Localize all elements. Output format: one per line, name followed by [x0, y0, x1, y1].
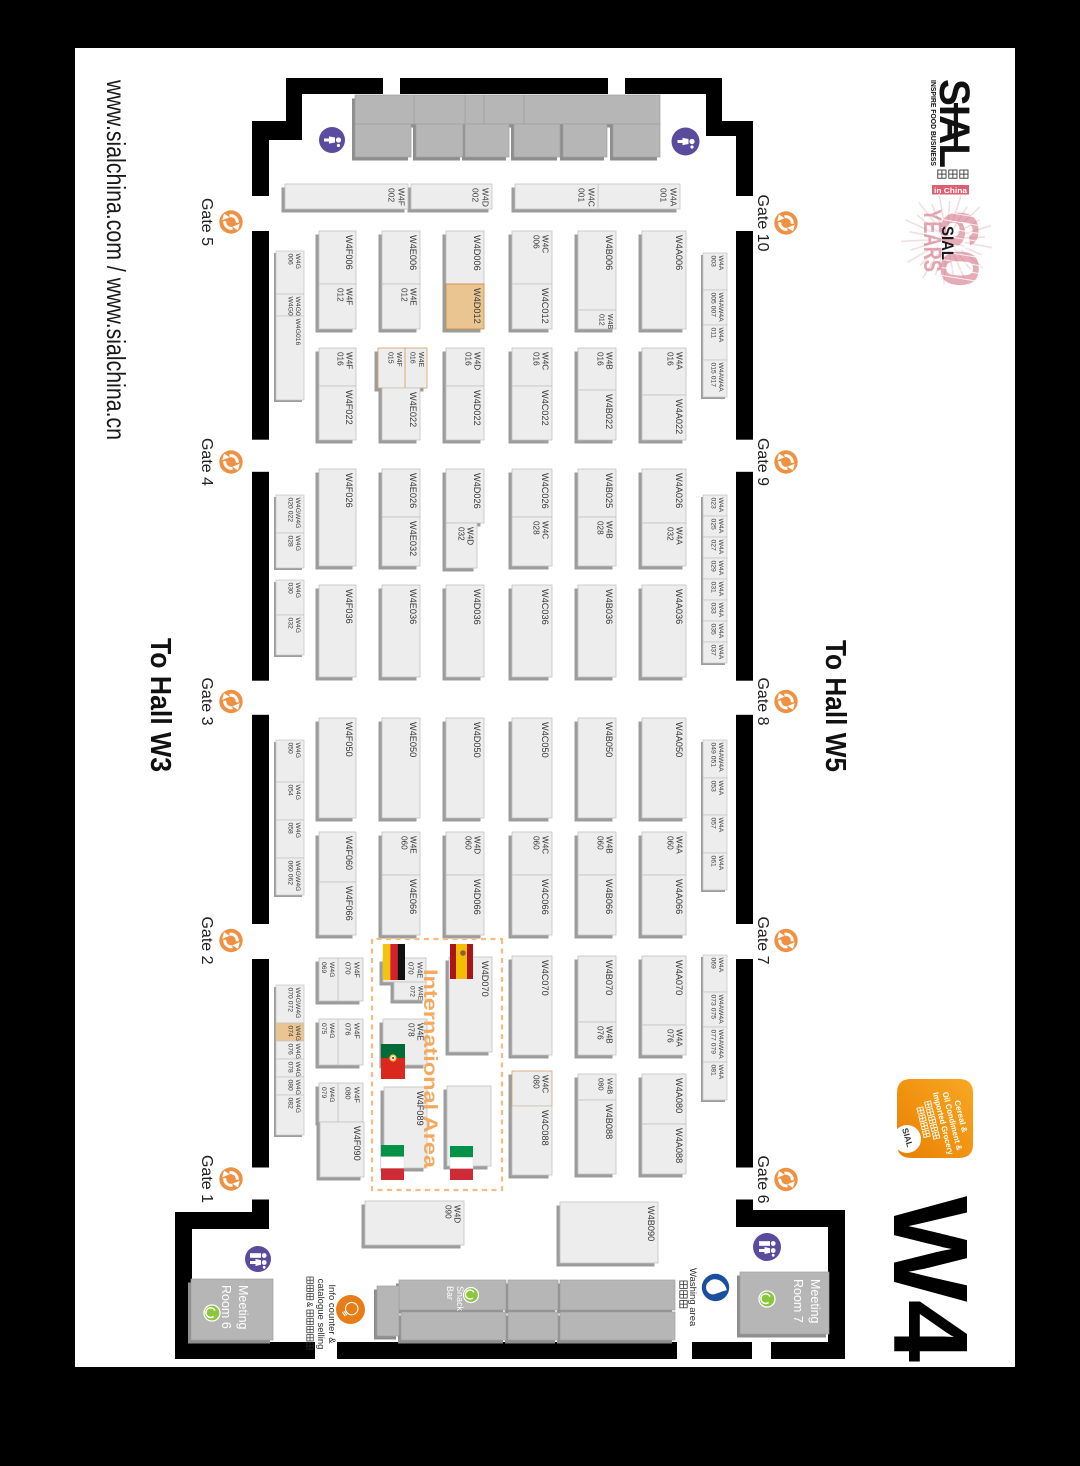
svg-text:W4AW4A: W4AW4A — [717, 995, 724, 1025]
svg-text:074: 074 — [287, 1026, 294, 1038]
svg-text:W4G: W4G — [294, 254, 301, 269]
svg-text:W4F060: W4F060 — [344, 836, 354, 870]
svg-text:080: 080 — [531, 1075, 540, 1089]
svg-text:015: 015 — [387, 352, 394, 364]
svg-text:011: 011 — [710, 328, 717, 339]
svg-text:W4G: W4G — [294, 1062, 301, 1077]
svg-text:W4C: W4C — [541, 235, 550, 253]
svg-text:www.sialchina.com / www.sialch: www.sialchina.com / www.sialchina.cn — [101, 79, 131, 440]
svg-text:W4C066: W4C066 — [540, 879, 550, 915]
svg-text:W4F: W4F — [352, 1023, 361, 1039]
svg-text:035: 035 — [710, 624, 717, 636]
svg-text:W4A: W4A — [717, 582, 724, 597]
svg-text:W4F: W4F — [396, 188, 406, 206]
svg-text:W4A088: W4A088 — [674, 1128, 684, 1163]
svg-text:Gate 2: Gate 2 — [198, 916, 215, 964]
svg-text:Bar: Bar — [445, 1286, 455, 1300]
svg-text:W4G: W4G — [294, 1080, 301, 1095]
svg-text:012: 012 — [598, 314, 605, 326]
svg-text:078: 078 — [406, 1023, 415, 1037]
svg-text:W4A: W4A — [717, 1065, 724, 1080]
svg-text:W4G: W4G — [328, 1023, 335, 1038]
svg-text:W4F050: W4F050 — [344, 722, 354, 757]
svg-text:W4G: W4G — [294, 618, 301, 633]
svg-text:050: 050 — [287, 743, 294, 755]
svg-text:W4E006: W4E006 — [408, 235, 418, 270]
svg-text:W4A: W4A — [668, 188, 678, 207]
svg-text:W4AW4A: W4AW4A — [717, 1030, 724, 1060]
svg-text:005 007: 005 007 — [710, 293, 717, 318]
svg-text:032: 032 — [287, 618, 294, 630]
svg-text:016: 016 — [665, 352, 674, 366]
svg-text:077 079: 077 079 — [710, 1030, 717, 1055]
svg-text:W4C070: W4C070 — [540, 960, 550, 996]
svg-text:076: 076 — [665, 1029, 674, 1043]
svg-text:W4F036: W4F036 — [344, 589, 354, 624]
svg-text:W4G: W4G — [294, 823, 301, 838]
svg-text:Gate 1: Gate 1 — [198, 1155, 215, 1203]
svg-text:076: 076 — [287, 1044, 294, 1056]
svg-text:W4G016: W4G016 — [294, 319, 301, 346]
svg-text:001: 001 — [659, 188, 669, 202]
svg-text:W4GW4G: W4GW4G — [294, 861, 301, 892]
svg-text:023: 023 — [710, 498, 717, 510]
svg-text:W4A036: W4A036 — [674, 589, 684, 624]
svg-text:W4B070: W4B070 — [604, 960, 614, 995]
svg-text:W4C022: W4C022 — [540, 390, 550, 426]
svg-text:028: 028 — [595, 521, 604, 535]
svg-text:016: 016 — [595, 352, 604, 366]
svg-text:002: 002 — [387, 188, 397, 202]
svg-text:W4C036: W4C036 — [540, 589, 550, 625]
svg-text:W4A: W4A — [717, 645, 724, 660]
svg-text:W4G: W4G — [328, 962, 335, 977]
svg-text:W4B: W4B — [606, 314, 613, 330]
svg-text:W4B025: W4B025 — [604, 473, 614, 508]
svg-text:W4E036: W4E036 — [408, 589, 418, 624]
svg-text:Meeting: Meeting — [808, 1279, 822, 1324]
svg-text:W4E066: W4E066 — [408, 879, 418, 914]
svg-text:W4A: W4A — [675, 352, 684, 370]
svg-text:W4B036: W4B036 — [604, 589, 614, 624]
svg-text:W4A: W4A — [717, 328, 724, 343]
svg-text:016: 016 — [335, 352, 344, 366]
svg-text:020 022: 020 022 — [287, 498, 294, 523]
svg-text:W4B090: W4B090 — [646, 1206, 656, 1241]
svg-text:060 062: 060 062 — [287, 861, 294, 886]
svg-text:060: 060 — [463, 836, 472, 850]
svg-text:W4F090: W4F090 — [352, 1126, 362, 1161]
svg-text:072: 072 — [409, 986, 416, 997]
svg-text:W4F: W4F — [352, 1087, 361, 1103]
svg-text:076: 076 — [595, 1026, 604, 1040]
svg-text:Meeting: Meeting — [236, 1285, 250, 1330]
svg-text:W4A066: W4A066 — [674, 879, 684, 914]
svg-text:W4D036: W4D036 — [472, 589, 482, 625]
svg-text:W4E026: W4E026 — [408, 473, 418, 508]
svg-text:075: 075 — [320, 1023, 327, 1035]
svg-text:W4D: W4D — [473, 352, 482, 370]
svg-text:Gate 8: Gate 8 — [754, 677, 771, 725]
svg-text:in China: in China — [934, 186, 968, 195]
svg-text:015 017: 015 017 — [710, 363, 717, 388]
svg-text:Gate 7: Gate 7 — [754, 916, 771, 964]
svg-text:016: 016 — [409, 352, 416, 364]
svg-text:Gate 5: Gate 5 — [198, 198, 215, 246]
svg-text:Room 7: Room 7 — [791, 1279, 805, 1323]
svg-text:W4C012: W4C012 — [540, 288, 550, 324]
svg-text:W4D066: W4D066 — [472, 879, 482, 915]
svg-text:W4A026: W4A026 — [674, 473, 684, 508]
svg-text:012: 012 — [335, 288, 344, 302]
svg-text:037: 037 — [710, 645, 717, 657]
svg-text:081: 081 — [710, 1065, 717, 1077]
svg-text:006: 006 — [287, 254, 294, 266]
svg-text:W4D: W4D — [473, 836, 482, 854]
svg-text:W4G: W4G — [294, 583, 301, 598]
svg-text:SIAL: SIAL — [938, 226, 957, 260]
svg-text:032: 032 — [665, 527, 674, 541]
svg-text:090: 090 — [443, 1205, 452, 1219]
svg-text:006: 006 — [531, 235, 540, 249]
svg-text:W4G: W4G — [294, 743, 301, 758]
svg-text:W4A: W4A — [675, 1029, 684, 1047]
svg-text:W4C: W4C — [541, 836, 550, 854]
svg-text:W4A: W4A — [717, 256, 724, 271]
svg-text:001: 001 — [577, 188, 587, 202]
svg-text:W4D026: W4D026 — [472, 473, 482, 509]
svg-text:033: 033 — [710, 603, 717, 615]
svg-text:INSPIRE FOOD BUSINESS: INSPIRE FOOD BUSINESS — [929, 80, 938, 166]
svg-text:W4B006: W4B006 — [604, 235, 614, 270]
svg-text:Gate 9: Gate 9 — [754, 438, 771, 486]
svg-text:W4C: W4C — [541, 521, 550, 539]
svg-text:W4G: W4G — [294, 785, 301, 800]
svg-text:W4: W4 — [871, 1196, 989, 1362]
svg-text:W4D022: W4D022 — [472, 390, 482, 426]
svg-text:070: 070 — [407, 962, 416, 975]
svg-text:030: 030 — [287, 583, 294, 595]
svg-text:W4E: W4E — [417, 352, 424, 368]
svg-text:060: 060 — [531, 836, 540, 850]
svg-text:Gate 10: Gate 10 — [754, 195, 771, 252]
svg-text:To Hall W5: To Hall W5 — [819, 640, 851, 772]
svg-text:W4B: W4B — [605, 1078, 614, 1094]
svg-text:W4A: W4A — [717, 519, 724, 534]
svg-text:002: 002 — [471, 188, 481, 202]
svg-text:W4A022: W4A022 — [674, 399, 684, 434]
svg-text:027: 027 — [710, 540, 717, 552]
svg-text:W4A: W4A — [717, 781, 724, 796]
svg-text:080: 080 — [287, 1080, 294, 1092]
svg-text:W4D050: W4D050 — [472, 722, 482, 758]
svg-text:W4D: W4D — [453, 1205, 462, 1223]
svg-text:W4F: W4F — [352, 962, 361, 978]
svg-text:W4F026: W4F026 — [344, 473, 354, 508]
svg-text:W4E: W4E — [409, 288, 418, 306]
svg-text:W4A: W4A — [717, 561, 724, 576]
svg-text:058: 058 — [287, 823, 294, 835]
svg-text:W4A070: W4A070 — [674, 960, 684, 995]
svg-text:W4E022: W4E022 — [408, 392, 418, 427]
svg-text:catalogue selling: catalogue selling — [315, 1279, 326, 1350]
svg-text:W4B022: W4B022 — [604, 394, 614, 429]
svg-text:W4AW4A: W4AW4A — [717, 743, 724, 773]
svg-text:054: 054 — [287, 785, 294, 797]
svg-text:W4D070: W4D070 — [480, 961, 490, 997]
svg-text:003: 003 — [710, 256, 717, 268]
svg-text:&: & — [305, 1302, 314, 1308]
svg-text:028: 028 — [531, 521, 540, 535]
svg-text:W4E: W4E — [409, 836, 418, 854]
svg-text:W4B050: W4B050 — [604, 722, 614, 757]
svg-text:W4A: W4A — [717, 624, 724, 639]
svg-text:W4B088: W4B088 — [604, 1104, 614, 1139]
svg-text:012: 012 — [399, 288, 408, 302]
svg-text:W4D012: W4D012 — [472, 288, 482, 324]
svg-text:082: 082 — [287, 1098, 294, 1110]
svg-text:W4A: W4A — [717, 856, 724, 871]
svg-text:W4A: W4A — [675, 527, 684, 545]
svg-text:069: 069 — [710, 958, 717, 970]
svg-text:W4G: W4G — [328, 1087, 335, 1102]
svg-text:076: 076 — [344, 1023, 353, 1036]
svg-text:W4AW4A: W4AW4A — [717, 363, 724, 393]
svg-text:Gate 6: Gate 6 — [754, 1155, 771, 1203]
svg-text:W4F066: W4F066 — [344, 886, 354, 921]
svg-text:016: 016 — [463, 352, 472, 366]
svg-text:W4E032: W4E032 — [408, 521, 418, 556]
svg-text:W4G: W4G — [294, 1026, 301, 1041]
svg-text:Gate 4: Gate 4 — [198, 438, 215, 486]
svg-text:060: 060 — [595, 836, 604, 850]
svg-text:W4C: W4C — [586, 188, 596, 207]
svg-text:W4A050: W4A050 — [674, 722, 684, 757]
svg-text:W4F: W4F — [345, 288, 354, 305]
svg-text:060: 060 — [665, 836, 674, 850]
svg-text:W4F: W4F — [345, 352, 354, 369]
svg-text:W4AW4A: W4AW4A — [717, 293, 724, 323]
svg-text:Room 6: Room 6 — [219, 1285, 233, 1329]
svg-text:Snack: Snack — [455, 1286, 465, 1312]
svg-text:W4F: W4F — [395, 352, 402, 367]
svg-text:W4E050: W4E050 — [408, 722, 418, 757]
svg-text:Washing area: Washing area — [687, 1268, 698, 1327]
svg-text:069: 069 — [320, 962, 327, 974]
svg-text:060: 060 — [399, 836, 408, 850]
svg-text:057: 057 — [710, 818, 717, 830]
svg-text:W4A080: W4A080 — [674, 1078, 684, 1113]
svg-text:W4C: W4C — [541, 352, 550, 370]
svg-text:Gate 3: Gate 3 — [198, 677, 215, 725]
svg-text:078: 078 — [287, 1062, 294, 1074]
svg-text:070: 070 — [344, 962, 353, 975]
svg-text:016: 016 — [531, 352, 540, 366]
svg-text:080: 080 — [597, 1078, 606, 1091]
svg-text:W4B066: W4B066 — [604, 879, 614, 914]
svg-text:029: 029 — [710, 561, 717, 573]
svg-text:070 072: 070 072 — [287, 988, 294, 1013]
svg-text:W4F022: W4F022 — [344, 390, 354, 425]
svg-text:W4A: W4A — [717, 498, 724, 513]
svg-text:W4B: W4B — [605, 836, 614, 854]
svg-text:W4C026: W4C026 — [540, 473, 550, 509]
svg-text:W4F006: W4F006 — [344, 235, 354, 270]
svg-text:W4C: W4C — [541, 1075, 550, 1093]
svg-text:International Area: International Area — [419, 969, 441, 1168]
svg-text:W4A: W4A — [717, 540, 724, 555]
svg-text:028: 028 — [287, 536, 294, 548]
svg-text:W4D: W4D — [480, 188, 490, 207]
svg-text:W4D: W4D — [466, 527, 475, 545]
svg-text:W4GW4G: W4GW4G — [294, 988, 301, 1019]
svg-text:061: 061 — [710, 856, 717, 868]
svg-text:W4G: W4G — [294, 536, 301, 551]
svg-text:To Hall W3: To Hall W3 — [144, 638, 176, 772]
svg-text:W4G: W4G — [294, 1098, 301, 1113]
svg-text:031: 031 — [710, 582, 717, 594]
svg-text:W4D006: W4D006 — [472, 235, 482, 271]
svg-text:W4A: W4A — [675, 836, 684, 854]
svg-text:073 075: 073 075 — [710, 995, 717, 1020]
svg-text:049 051: 049 051 — [710, 743, 717, 768]
svg-text:W4A: W4A — [717, 603, 724, 618]
svg-text:W4A006: W4A006 — [674, 235, 684, 270]
svg-text:032: 032 — [456, 527, 465, 541]
svg-text:W4A: W4A — [717, 958, 724, 973]
svg-text:Info counter &: Info counter & — [326, 1284, 337, 1344]
svg-text:W4B: W4B — [605, 1026, 614, 1044]
svg-text:W4C050: W4C050 — [540, 722, 550, 758]
svg-text:025: 025 — [710, 519, 717, 531]
svg-text:W4GW4G: W4GW4G — [294, 498, 301, 529]
svg-text:W4A: W4A — [717, 818, 724, 833]
svg-text:W4B: W4B — [605, 521, 614, 539]
svg-text:W4C088: W4C088 — [540, 1110, 550, 1146]
svg-text:079: 079 — [320, 1087, 327, 1099]
svg-text:053: 053 — [710, 781, 717, 793]
svg-text:W4B: W4B — [605, 352, 614, 370]
svg-text:W4G: W4G — [294, 1044, 301, 1059]
svg-text:080: 080 — [344, 1087, 353, 1100]
